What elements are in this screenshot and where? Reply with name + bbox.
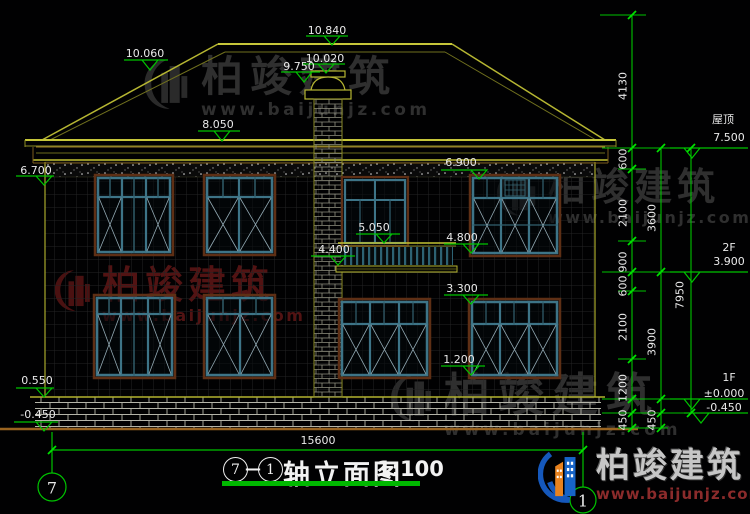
level-ridge-label: 10.840 xyxy=(308,25,347,36)
level-win2f-sill-label: 4.800 xyxy=(446,232,478,243)
title-axis-right-circle: 1 xyxy=(258,457,283,482)
window-1f-mid xyxy=(339,299,430,378)
dim-600b: 600 xyxy=(618,276,629,297)
roof-floor-label: 屋顶 xyxy=(712,114,734,125)
brand-logo-name: 柏竣建筑 xyxy=(596,449,750,483)
dim-1200: 1200 xyxy=(618,374,629,402)
level-eave-label: 8.050 xyxy=(202,119,234,130)
balcony-railing xyxy=(336,243,457,272)
level-wall-band-label: 6.700 xyxy=(20,165,52,176)
axis-bubble-7: 7 xyxy=(47,479,57,498)
drawing-scale: 1:100 xyxy=(377,457,444,481)
level-win1f-sill-label: 1.200 xyxy=(443,354,475,365)
window-2f-left2 xyxy=(204,175,275,255)
level-roof-edge-label: 10.060 xyxy=(126,48,165,59)
dim-width-15600: 15600 xyxy=(301,435,336,446)
dim-7950: 7950 xyxy=(675,281,686,309)
dim-3600: 3600 xyxy=(647,204,658,232)
level-balcony-rail-label: 5.050 xyxy=(358,222,390,233)
roof-floor-value: 7.500 xyxy=(713,132,745,143)
floor1-value: ±0.000 xyxy=(704,388,745,399)
brand-logo: 柏竣建筑 www.baijunjz.com xyxy=(538,444,750,506)
dim-450b: 450 xyxy=(647,410,658,431)
balcony-door xyxy=(342,177,408,246)
dim-2100a: 2100 xyxy=(618,199,629,227)
level-chimney-cap-label: 9.750 xyxy=(283,61,315,72)
level-ground-label: -0.450 xyxy=(20,409,55,420)
window-1f-left xyxy=(94,295,175,378)
dim-3900: 3900 xyxy=(647,328,658,356)
level-win2f-head-label: 6.900 xyxy=(445,157,477,168)
cad-elevation-screenshot: 柏竣建筑 www.baijunjz.com 柏竣建筑 www.baijunjz.… xyxy=(0,0,750,514)
level-balcony-slab-label: 4.400 xyxy=(318,244,350,255)
title-underline xyxy=(222,481,420,486)
dim-2100b: 2100 xyxy=(618,313,629,341)
level-plinth-top-label: 0.550 xyxy=(21,375,53,386)
floor1-label: 1F xyxy=(722,372,735,383)
window-2f-left xyxy=(95,175,173,255)
level-win1f-head-label: 3.300 xyxy=(446,283,478,294)
dim-450a: 450 xyxy=(618,410,629,431)
floor2-value: 3.900 xyxy=(713,256,745,267)
brand-logo-url: www.baijunjz.com xyxy=(596,487,750,502)
dim-4130: 4130 xyxy=(618,72,629,100)
dim-600a: 600 xyxy=(618,149,629,170)
brand-logo-icon xyxy=(538,444,588,506)
floor2-label: 2F xyxy=(722,242,735,253)
brand-logo-text: 柏竣建筑 www.baijunjz.com xyxy=(596,449,750,502)
basement-value: -0.450 xyxy=(706,402,741,413)
dim-900: 900 xyxy=(618,252,629,273)
window-1f-left2 xyxy=(204,295,275,378)
elevation-drawing xyxy=(0,0,750,514)
